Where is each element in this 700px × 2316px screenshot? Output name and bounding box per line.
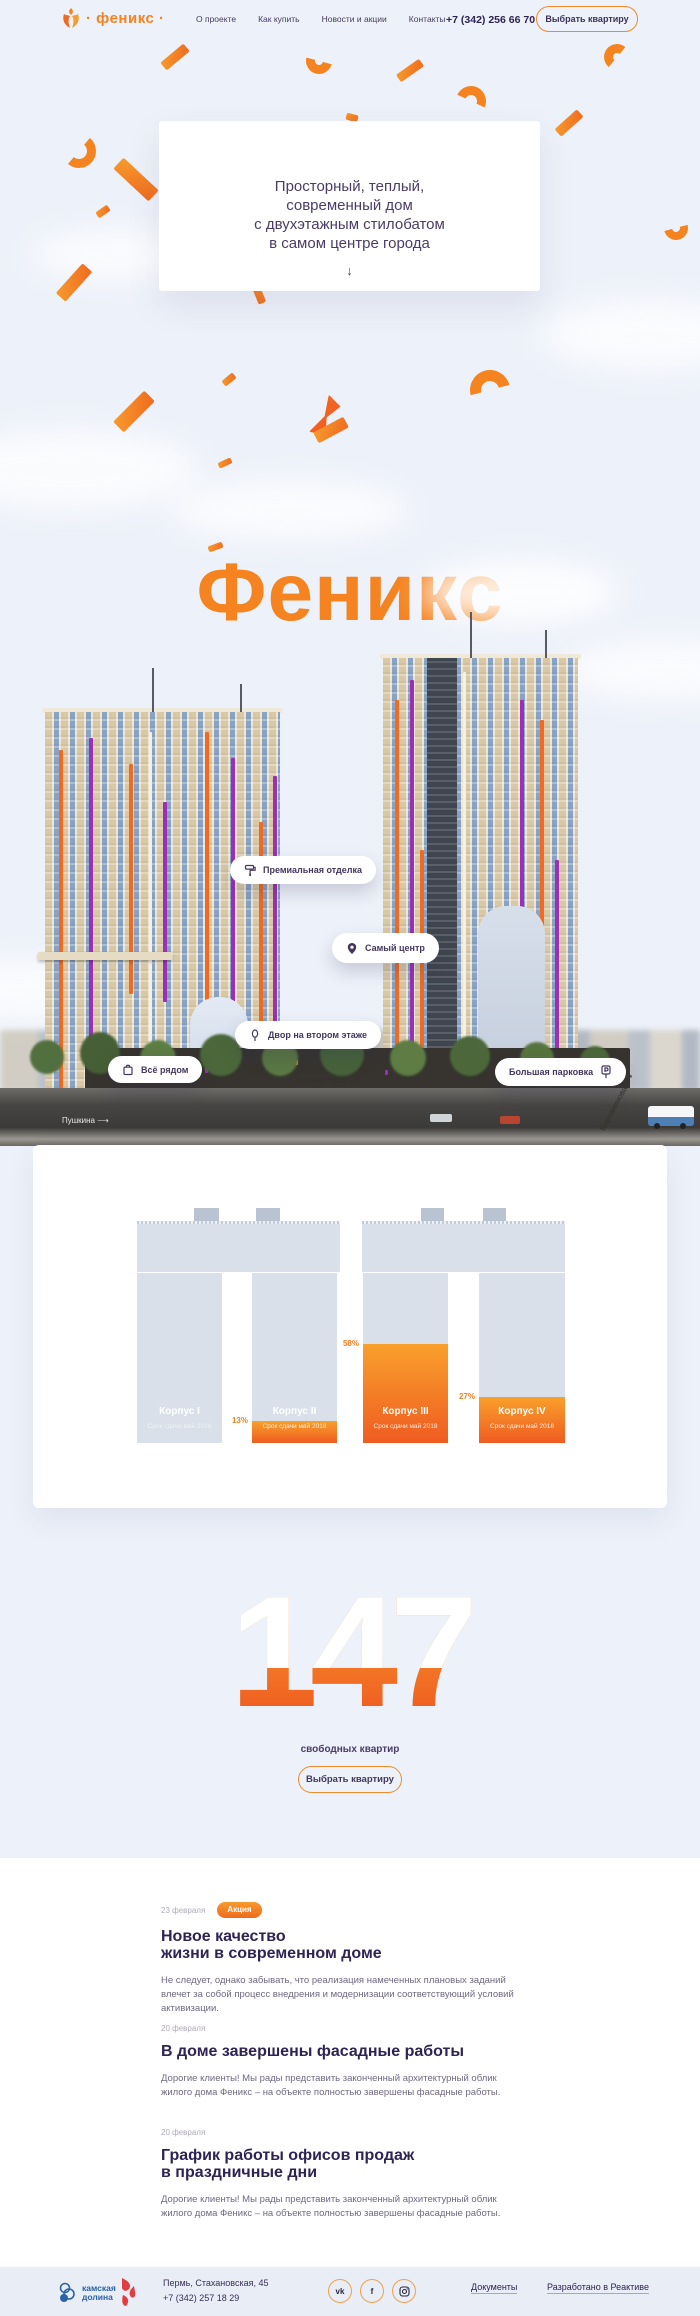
tree	[30, 1040, 64, 1074]
news-date: 23 февраля	[161, 1906, 205, 1915]
kamskaya-dolina-logo[interactable]: камская долина	[58, 2278, 136, 2308]
roof-bump	[194, 1208, 219, 1221]
confetti-shape	[301, 43, 337, 79]
news-body: Не следует, однако забывать, что реализа…	[161, 1974, 521, 2016]
news-title-link[interactable]: В доме завершены фасадные работы	[161, 2043, 541, 2060]
street-label-pushkina: Пушкина ⟶	[62, 1116, 109, 1125]
confetti-shape	[463, 363, 518, 418]
free-apartments-caption: свободных квартир	[0, 1744, 700, 1755]
confetti-shape	[603, 43, 631, 71]
feature-pill-premium-finish: Премиальная отделка	[230, 856, 376, 884]
progress-bar-korpus-2: 13% Корпус II Срок сдачи май 2018	[252, 1273, 337, 1443]
confetti-shape	[160, 44, 189, 71]
nav-item-about[interactable]: О проекте	[196, 14, 236, 24]
news-item: 23 февраля Акция Новое качество жизни в …	[161, 1902, 541, 2016]
car	[500, 1116, 520, 1124]
progress-bar-korpus-3: 58% Корпус III Срок сдачи май 2018	[363, 1273, 448, 1443]
hero-card: Просторный, теплый, современный дом с дв…	[159, 121, 540, 291]
free-apartments-number: 147 147	[0, 1590, 700, 1720]
kamskaya-dolina-emblem-icon	[58, 2281, 78, 2305]
tree	[450, 1036, 490, 1076]
header-phone[interactable]: +7 (342) 256 66 70	[446, 14, 535, 26]
footer-address: Пермь, Стахановская, 45 +7 (342) 257 18 …	[163, 2276, 268, 2306]
facebook-icon[interactable]: f	[360, 2279, 384, 2303]
progress-fill	[479, 1397, 565, 1443]
roof-bump	[421, 1208, 444, 1221]
news-item: 20 февраля В доме завершены фасадные раб…	[161, 2024, 541, 2100]
confetti-shape	[221, 372, 236, 386]
feature-pill-label: Самый центр	[365, 943, 425, 953]
roof-bump	[483, 1208, 506, 1221]
header: · феникс · О проекте Как купить Новости …	[0, 0, 700, 38]
progress-percent: 27%	[445, 1392, 475, 1401]
confetti-shape	[396, 59, 424, 82]
left-building-ledge	[38, 952, 172, 960]
feature-pill-label: Премиальная отделка	[263, 865, 362, 875]
cloud	[540, 300, 700, 370]
antenna	[470, 612, 472, 658]
news-body: Дорогие клиенты! Мы рады представить зак…	[161, 2193, 521, 2221]
hero-text: Просторный, теплый, современный дом с дв…	[159, 177, 540, 253]
news-date: 20 февраля	[161, 2024, 205, 2033]
confetti-shape	[452, 82, 490, 120]
parking-icon	[600, 1065, 612, 1079]
progress-bar-korpus-1: Корпус I Срок сдачи май 2018	[137, 1273, 222, 1443]
bus	[648, 1106, 694, 1126]
news-title-link[interactable]: Новое качество жизни в современном доме	[161, 1928, 541, 1962]
feature-pill-everything-nearby: Всё рядом	[108, 1056, 202, 1083]
progress-bar-korpus-4: 27% Корпус IV Срок сдачи май 2018	[479, 1273, 565, 1443]
nav-item-news[interactable]: Новости и акции	[322, 14, 387, 24]
promo-badge: Акция	[217, 1902, 261, 1918]
footer: камская долина Пермь, Стахановская, 45 +…	[0, 2267, 700, 2316]
confetti-shape	[113, 158, 158, 202]
construction-progress-card: Корпус I Срок сдачи май 2018 13% Корпус …	[33, 1145, 667, 1508]
paint-roller-icon	[244, 864, 256, 877]
map-pin-icon	[346, 942, 358, 955]
news-date: 20 февраля	[161, 2128, 205, 2137]
roof-bump	[256, 1208, 280, 1221]
address-line: Пермь, Стахановская, 45	[163, 2276, 268, 2291]
confetti-shape	[660, 212, 693, 245]
logo[interactable]: · феникс ·	[60, 6, 165, 30]
logo-text: · феникс ·	[86, 10, 165, 27]
phoenix-logo-icon	[60, 6, 82, 30]
tree-icon	[249, 1029, 261, 1042]
antenna	[545, 630, 547, 658]
confetti-shape	[217, 457, 232, 468]
antenna	[152, 668, 154, 712]
feature-pill-parking: Большая парковка	[495, 1058, 626, 1086]
vk-icon[interactable]: vk	[328, 2279, 352, 2303]
shopping-bag-icon	[122, 1063, 134, 1076]
car	[430, 1114, 452, 1122]
page: · феникс · О проекте Как купить Новости …	[0, 0, 700, 2316]
right-tower	[383, 658, 578, 1090]
developed-by-link[interactable]: Разработано в Реактиве	[547, 2282, 649, 2294]
brand-line2: долина	[82, 2293, 116, 2302]
feature-pill-city-center: Самый центр	[332, 933, 439, 963]
news-section: 23 февраля Акция Новое качество жизни в …	[0, 1858, 700, 2267]
progress-percent: 13%	[218, 1416, 248, 1425]
confetti-shape	[95, 205, 110, 219]
nav-item-how-to-buy[interactable]: Как купить	[258, 14, 300, 24]
confetti-shape	[113, 391, 155, 433]
feature-pill-label: Двор на втором этаже	[268, 1030, 367, 1040]
progress-percent: 58%	[329, 1339, 359, 1348]
antenna	[240, 684, 242, 712]
cloud	[170, 480, 410, 540]
news-body: Дорогие клиенты! Мы рады представить зак…	[161, 2072, 521, 2100]
scroll-down-arrow-icon[interactable]: ↓	[159, 263, 540, 278]
footer-phone[interactable]: +7 (342) 257 18 29	[163, 2291, 268, 2306]
documents-link[interactable]: Документы	[471, 2282, 517, 2294]
stylobate-block	[362, 1221, 565, 1272]
social-links: vk f	[328, 2279, 416, 2303]
tree	[390, 1040, 426, 1076]
confetti-shape	[61, 133, 98, 170]
feature-pill-courtyard: Двор на втором этаже	[235, 1021, 381, 1049]
feature-pill-label: Большая парковка	[509, 1067, 593, 1077]
nav-item-contacts[interactable]: Контакты	[409, 14, 446, 24]
news-title-link[interactable]: График работы офисов продаж в праздничны…	[161, 2147, 541, 2181]
feature-pill-label: Всё рядом	[141, 1065, 188, 1075]
stylobate-block	[137, 1221, 340, 1272]
confetti-shape	[313, 417, 349, 444]
street-label-lunacharskogo: Луначарского ⟶	[295, 1076, 359, 1085]
instagram-icon[interactable]	[392, 2279, 416, 2303]
news-item: 20 февраля График работы офисов продаж в…	[161, 2128, 541, 2221]
cloud	[0, 430, 200, 510]
choose-apartment-button-secondary[interactable]: Выбрать квартиру	[298, 1766, 402, 1793]
main-nav: О проекте Как купить Новости и акции Кон…	[196, 0, 446, 38]
confetti-shape	[555, 109, 584, 137]
flame-icon	[120, 2278, 136, 2308]
choose-apartment-button[interactable]: Выбрать квартиру	[536, 6, 638, 32]
